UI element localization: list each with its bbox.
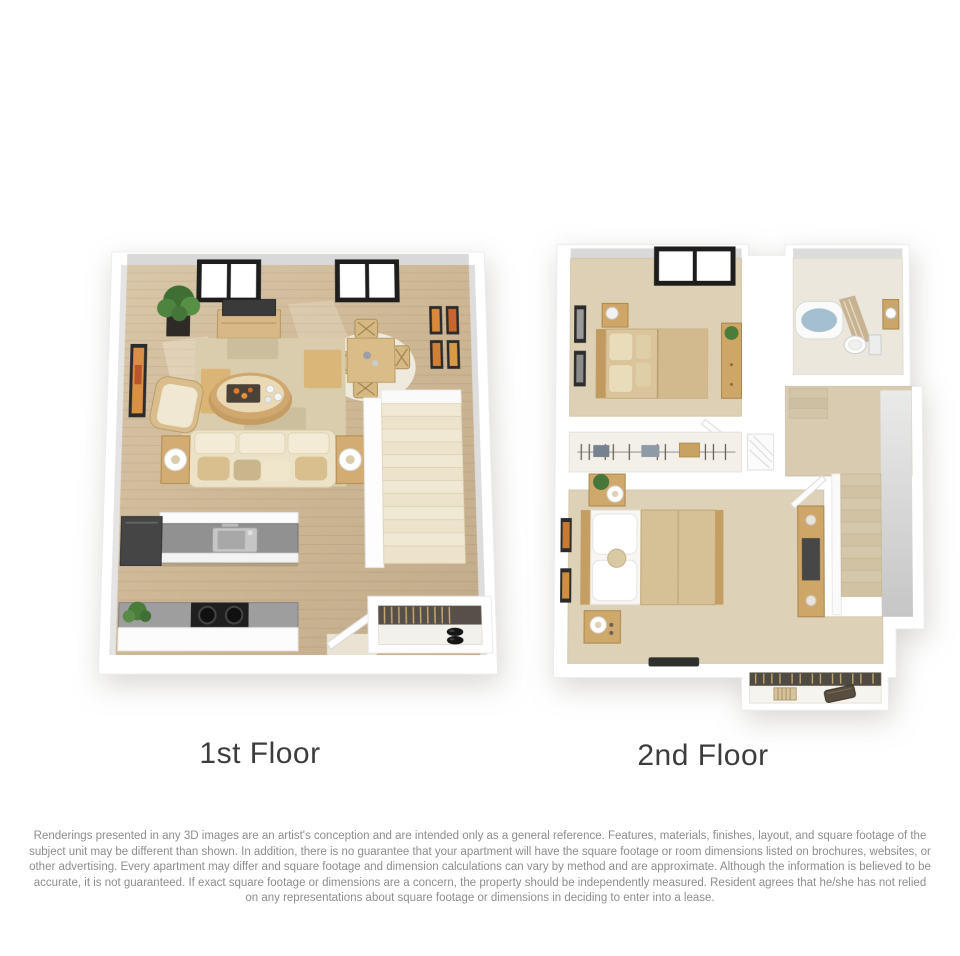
folded-linens [593, 445, 609, 457]
tv-console [217, 299, 280, 338]
window [196, 259, 261, 302]
kitchen-counter [118, 602, 298, 651]
throw-pillow [262, 461, 290, 482]
lamp [806, 596, 816, 606]
window [335, 259, 400, 302]
television [802, 538, 820, 580]
toilet [844, 335, 881, 355]
kitchen-island [120, 513, 298, 567]
side-table [161, 436, 190, 484]
storage-basket [774, 688, 796, 700]
bath-top-wall-face [793, 248, 902, 258]
nightstand [602, 303, 628, 327]
stairwell-void [880, 390, 913, 616]
hall-closet [569, 432, 741, 472]
side-table [336, 436, 365, 484]
media-console [798, 506, 825, 617]
television [223, 299, 276, 315]
dining-chair [355, 319, 378, 338]
left-wall-art [129, 344, 148, 417]
lamp [806, 515, 816, 525]
dining-chair [394, 346, 410, 369]
second-floor-svg [543, 239, 933, 722]
throw-pillow [234, 460, 261, 481]
bathroom [793, 258, 903, 374]
lamp [606, 307, 618, 319]
nightstand [589, 474, 625, 506]
first-floor-label: 1st Floor [60, 737, 460, 771]
linen-shelf [748, 434, 774, 470]
closet-nook [750, 673, 882, 704]
second-floor-label: 2nd Floor [503, 739, 903, 773]
staircase-down [841, 474, 882, 597]
headboard [596, 329, 606, 398]
pillow [609, 365, 633, 393]
disclaimer-text: Renderings presented in any 3D images ar… [27, 829, 933, 907]
vanity-sink [883, 299, 899, 329]
plant [593, 474, 609, 490]
pillow [636, 335, 651, 359]
folded-linens [641, 445, 659, 457]
dining-table [347, 338, 395, 382]
window [654, 246, 736, 285]
bolster [608, 549, 626, 567]
master-bed [580, 510, 723, 605]
bathtub [795, 301, 843, 338]
bath-water [801, 308, 837, 332]
second-floor-plan [545, 236, 931, 720]
kitchen-sink [212, 524, 257, 552]
closet-shelf [378, 606, 481, 625]
stair-railing-wall [364, 398, 384, 568]
pillow [636, 363, 651, 387]
second-floor-perspective [543, 239, 933, 722]
page: { "page": { "background_color": "#ffffff… [0, 0, 960, 956]
bed [596, 329, 708, 398]
refrigerator [120, 517, 162, 566]
first-floor-perspective [90, 247, 506, 681]
stair-arrival-steps [789, 388, 827, 418]
pillow [593, 514, 637, 554]
pillow [609, 333, 633, 361]
sofa [188, 430, 336, 487]
staircase [364, 390, 466, 567]
throw-pillow [295, 457, 327, 481]
first-floor-plan [97, 236, 499, 676]
stair-railing-wall [832, 474, 842, 615]
basket [679, 443, 699, 457]
dresser [722, 323, 742, 398]
armchair [148, 375, 205, 435]
coffee-table [208, 373, 292, 425]
floor-mat [649, 657, 700, 666]
comforter [658, 329, 708, 398]
nightstand [584, 611, 621, 643]
throw-pillow [197, 457, 230, 481]
top-wall-face [127, 254, 469, 265]
footboard [715, 510, 723, 605]
first-floor-svg [90, 247, 506, 681]
headboard [580, 510, 591, 605]
entry-closet [368, 596, 493, 652]
plant [725, 326, 739, 340]
